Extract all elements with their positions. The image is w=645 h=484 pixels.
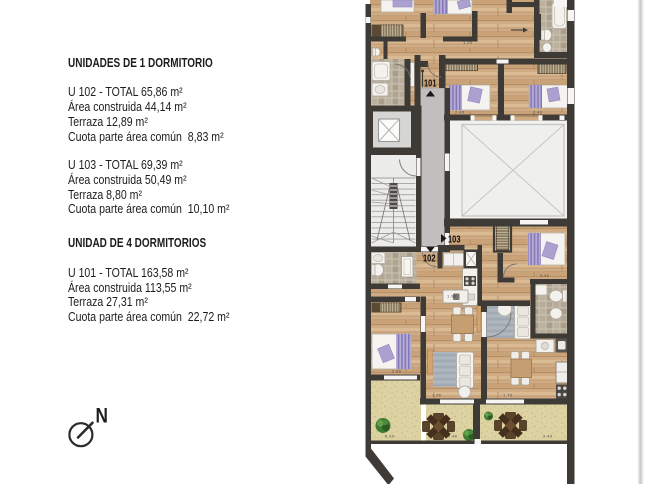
svg-text:101: 101 [424, 77, 437, 88]
svg-text:102: 102 [423, 252, 436, 263]
svg-text:2.40: 2.40 [533, 110, 543, 115]
svg-text:1.96: 1.96 [432, 393, 442, 398]
svg-text:1.98: 1.98 [447, 294, 457, 299]
svg-text:103: 103 [448, 233, 461, 244]
svg-text:1.20: 1.20 [463, 40, 473, 45]
svg-text:2.86: 2.86 [392, 369, 402, 374]
svg-text:N: N [96, 405, 108, 428]
svg-text:3.40: 3.40 [540, 273, 550, 278]
svg-text:4.40: 4.40 [448, 434, 458, 439]
svg-text:5.00: 5.00 [385, 434, 395, 439]
svg-text:2.40: 2.40 [543, 434, 553, 439]
svg-text:1.75: 1.75 [503, 393, 513, 398]
svg-text:2.40: 2.40 [455, 110, 465, 115]
